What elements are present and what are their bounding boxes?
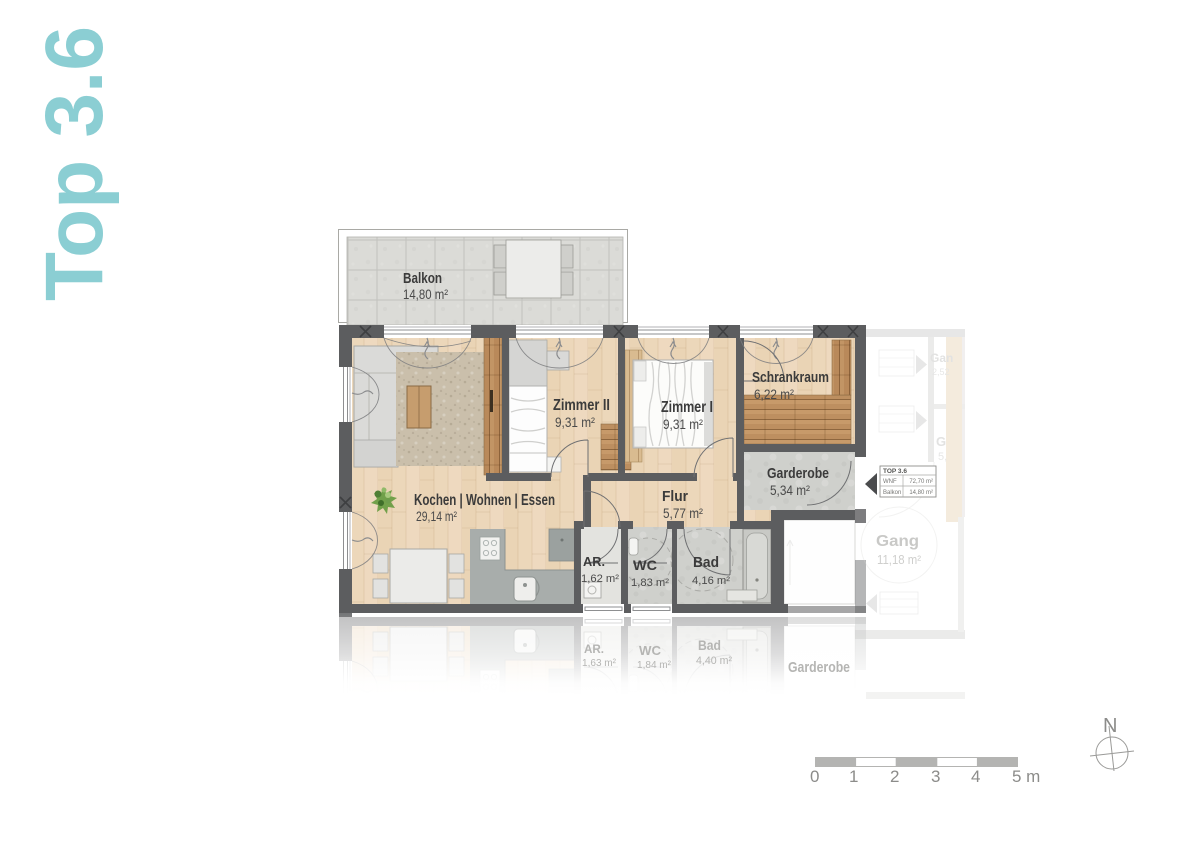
svg-text:Bad: Bad [693, 554, 719, 571]
svg-text:AR.: AR. [583, 554, 605, 569]
svg-text:Schrankraum: Schrankraum [752, 369, 829, 386]
svg-text:9,31 m²: 9,31 m² [663, 417, 703, 432]
svg-text:9,31 m²: 9,31 m² [555, 415, 595, 430]
svg-text:Balkon: Balkon [403, 270, 442, 287]
svg-text:Gan: Gan [930, 351, 953, 365]
svg-text:Zimmer I: Zimmer I [661, 399, 713, 416]
svg-text:Garderobe: Garderobe [788, 659, 850, 676]
svg-text:WNF: WNF [883, 479, 897, 485]
svg-text:14,80 m²: 14,80 m² [909, 490, 933, 496]
svg-text:WC: WC [639, 643, 662, 658]
svg-text:Top 3.6: Top 3.6 [29, 26, 120, 301]
svg-text:Gang: Gang [876, 533, 919, 550]
svg-text:6,22 m²: 6,22 m² [754, 387, 794, 402]
svg-text:1: 1 [849, 767, 858, 786]
svg-text:Flur: Flur [662, 488, 688, 505]
svg-text:Bad: Bad [698, 637, 721, 653]
svg-text:2: 2 [890, 767, 899, 786]
svg-text:72,70 m²: 72,70 m² [909, 479, 933, 485]
svg-text:G: G [936, 434, 946, 449]
svg-text:N: N [1103, 715, 1117, 737]
svg-text:Balkon: Balkon [883, 490, 901, 496]
svg-text:4,16 m²: 4,16 m² [692, 575, 730, 587]
svg-text:5,77 m²: 5,77 m² [663, 506, 703, 521]
svg-text:29,14 m²: 29,14 m² [416, 509, 457, 524]
svg-text:3: 3 [931, 767, 940, 786]
svg-text:1,84 m²: 1,84 m² [637, 660, 672, 671]
svg-text:TOP 3.6: TOP 3.6 [883, 468, 907, 475]
svg-text:0: 0 [810, 767, 819, 786]
svg-text:AR.: AR. [584, 642, 604, 656]
svg-text:1,83 m²: 1,83 m² [631, 577, 669, 589]
svg-text:1,63 m²: 1,63 m² [582, 658, 617, 669]
svg-text:1,62 m²: 1,62 m² [581, 573, 619, 585]
svg-text:Zimmer II: Zimmer II [553, 397, 610, 414]
svg-text:5 m: 5 m [1012, 767, 1040, 786]
svg-text:2,52: 2,52 [932, 367, 950, 377]
svg-text:14,80 m²: 14,80 m² [403, 286, 448, 302]
svg-text:11,18 m²: 11,18 m² [877, 552, 922, 567]
svg-text:WC: WC [633, 557, 657, 573]
svg-text:Kochen | Wohnen | Essen: Kochen | Wohnen | Essen [414, 492, 555, 509]
svg-text:5,: 5, [938, 451, 947, 463]
svg-text:4: 4 [971, 767, 980, 786]
svg-text:4,40 m²: 4,40 m² [696, 655, 732, 667]
svg-text:5,34 m²: 5,34 m² [770, 483, 810, 498]
svg-text:Garderobe: Garderobe [767, 465, 829, 482]
